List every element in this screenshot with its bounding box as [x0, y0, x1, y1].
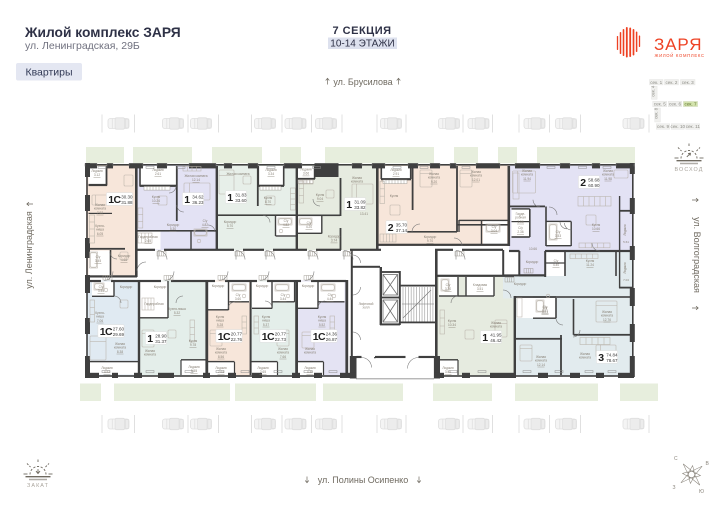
svg-text:5.61: 5.61	[623, 240, 629, 244]
svg-text:4.20: 4.20	[306, 225, 312, 229]
svg-text:7.92: 7.92	[97, 211, 103, 215]
svg-text:сек. 7: сек. 7	[685, 102, 697, 107]
svg-text:2: 2	[388, 222, 394, 234]
svg-text:сек. 9: сек. 9	[657, 124, 669, 129]
svg-text:2.65: 2.65	[145, 239, 151, 243]
svg-text:Квартиры: Квартиры	[25, 67, 72, 79]
svg-text:Коридор: Коридор	[302, 284, 315, 288]
svg-text:ЗАРЯ: ЗАРЯ	[654, 35, 702, 54]
svg-text:3: 3	[598, 352, 604, 364]
svg-text:8.38: 8.38	[117, 350, 123, 354]
svg-text:2.36: 2.36	[517, 230, 523, 234]
svg-text:10.34: 10.34	[448, 323, 456, 327]
svg-text:сек. 5: сек. 5	[654, 102, 666, 107]
svg-text:12.14: 12.14	[537, 363, 545, 367]
svg-text:1: 1	[482, 332, 488, 344]
svg-text:сек. 6: сек. 6	[669, 102, 681, 107]
svg-text:10.66: 10.66	[529, 247, 537, 251]
svg-text:комната: комната	[144, 353, 156, 357]
svg-text:9.20: 9.20	[431, 180, 437, 184]
svg-text:60.90: 60.90	[588, 183, 600, 188]
svg-text:9.04: 9.04	[317, 197, 323, 201]
svg-text:78.67: 78.67	[606, 358, 618, 363]
svg-text:комната: комната	[304, 351, 316, 355]
svg-text:5.37: 5.37	[263, 323, 269, 327]
svg-text:Лоджия: Лоджия	[623, 262, 627, 274]
svg-text:ул. Волгоградская: ул. Волгоградская	[692, 217, 702, 293]
svg-text:26.87: 26.87	[326, 337, 338, 342]
svg-text:31.37: 31.37	[155, 339, 167, 344]
svg-text:12.01: 12.01	[472, 178, 480, 182]
svg-text:12.76: 12.76	[603, 318, 611, 322]
svg-text:Жилой комплекс ЗАРЯ: Жилой комплекс ЗАРЯ	[24, 25, 181, 40]
svg-text:33.82: 33.82	[354, 205, 366, 210]
svg-text:7.04: 7.04	[623, 278, 629, 282]
svg-text:8.56: 8.56	[218, 355, 224, 359]
svg-text:ЖИЛОЙ КОМПЛЕКС: ЖИЛОЙ КОМПЛЕКС	[655, 53, 705, 58]
svg-text:3.45: 3.45	[98, 289, 104, 293]
svg-text:ул. Ленинградская: ул. Ленинградская	[24, 211, 34, 289]
svg-text:7.06: 7.06	[97, 319, 103, 323]
svg-text:комната: комната	[351, 180, 363, 184]
svg-text:Коридор: Коридор	[526, 260, 539, 264]
svg-text:1С: 1С	[108, 194, 121, 206]
svg-text:4.44: 4.44	[327, 297, 333, 301]
svg-text:Гардеробная: Гардеробная	[144, 302, 164, 306]
svg-text:сек. 4: сек. 4	[650, 85, 655, 97]
svg-text:5.32: 5.32	[174, 311, 180, 315]
svg-text:5.70: 5.70	[227, 224, 233, 228]
svg-text:сек. 10: сек. 10	[671, 124, 686, 129]
svg-text:З: З	[673, 485, 676, 491]
svg-text:31.88: 31.88	[121, 200, 133, 205]
svg-text:3.53: 3.53	[555, 234, 561, 238]
svg-text:Жилая комната: Жилая комната	[226, 172, 249, 176]
svg-text:3.04: 3.04	[491, 229, 497, 233]
svg-text:8.70: 8.70	[265, 200, 271, 204]
svg-text:3.44: 3.44	[280, 297, 286, 301]
svg-text:ЗАКАТ: ЗАКАТ	[27, 483, 49, 489]
svg-text:ул. Брусилова: ул. Брусилова	[333, 77, 392, 87]
svg-text:9.78: 9.78	[190, 343, 196, 347]
svg-text:22.73: 22.73	[275, 337, 287, 342]
svg-text:13.41: 13.41	[360, 212, 368, 216]
svg-text:1: 1	[227, 192, 233, 204]
svg-text:11.24: 11.24	[586, 263, 594, 267]
svg-text:сек. 11: сек. 11	[686, 124, 701, 129]
svg-text:Коридор: Коридор	[212, 284, 225, 288]
svg-text:1С: 1С	[313, 331, 326, 343]
svg-text:5.55: 5.55	[191, 369, 197, 373]
svg-text:комната: комната	[490, 325, 502, 329]
svg-text:3.51: 3.51	[477, 287, 483, 291]
svg-text:3.70: 3.70	[445, 287, 451, 291]
svg-text:12.14: 12.14	[192, 178, 200, 182]
svg-text:7.66: 7.66	[280, 355, 286, 359]
svg-text:6.05: 6.05	[97, 232, 103, 236]
svg-text:3.66: 3.66	[303, 172, 309, 176]
svg-text:1: 1	[184, 194, 190, 206]
svg-text:1: 1	[346, 199, 352, 211]
svg-text:1С: 1С	[100, 326, 113, 338]
svg-text:46.42: 46.42	[490, 338, 502, 343]
svg-text:2.91: 2.91	[393, 172, 399, 176]
svg-text:Ю: Ю	[699, 489, 704, 495]
svg-text:1.56: 1.56	[517, 220, 523, 224]
svg-text:22.76: 22.76	[231, 337, 243, 342]
svg-text:33.60: 33.60	[235, 198, 247, 203]
svg-text:ул. Полины Осипенко: ул. Полины Осипенко	[318, 475, 408, 485]
svg-text:3.45: 3.45	[95, 259, 101, 263]
svg-text:37.14: 37.14	[396, 228, 408, 233]
svg-text:4.40: 4.40	[553, 263, 559, 267]
svg-text:5.52: 5.52	[319, 323, 325, 327]
svg-text:7 СЕКЦИЯ: 7 СЕКЦИЯ	[332, 25, 391, 37]
svg-text:Коридор: Коридор	[514, 282, 527, 286]
svg-text:3.34: 3.34	[268, 172, 274, 176]
svg-text:5.28: 5.28	[217, 323, 223, 327]
svg-text:11.98: 11.98	[604, 177, 612, 181]
svg-text:4.82: 4.82	[283, 223, 289, 227]
svg-text:Кухня: Кухня	[390, 194, 399, 198]
svg-text:9.70: 9.70	[427, 239, 433, 243]
svg-text:ВОСХОД: ВОСХОД	[675, 167, 704, 173]
svg-text:3.51: 3.51	[445, 370, 451, 374]
svg-text:1: 1	[147, 333, 153, 345]
svg-text:С: С	[674, 456, 678, 462]
svg-text:2.61: 2.61	[155, 172, 161, 176]
svg-text:2.65: 2.65	[260, 370, 266, 374]
svg-text:36.23: 36.23	[192, 200, 204, 205]
svg-text:3.21: 3.21	[542, 310, 548, 314]
svg-text:3.60: 3.60	[235, 297, 241, 301]
svg-text:комната: комната	[579, 356, 591, 360]
svg-text:10.66: 10.66	[592, 227, 600, 231]
svg-text:5.30: 5.30	[170, 227, 176, 231]
svg-text:Коридор: Коридор	[154, 285, 167, 289]
svg-text:холл: холл	[363, 306, 370, 310]
svg-text:сек. 2: сек. 2	[666, 80, 678, 85]
svg-text:сек. 8: сек. 8	[654, 107, 659, 119]
svg-text:4.82: 4.82	[202, 223, 208, 227]
svg-text:Коридор: Коридор	[256, 284, 269, 288]
svg-text:1С: 1С	[262, 331, 275, 343]
svg-text:29.69: 29.69	[113, 332, 125, 337]
svg-text:сек. 3: сек. 3	[682, 80, 694, 85]
svg-text:2: 2	[580, 177, 586, 189]
svg-text:1С: 1С	[218, 331, 231, 343]
svg-text:3.12: 3.12	[94, 173, 100, 177]
svg-text:4.40: 4.40	[307, 370, 313, 374]
svg-text:ул. Ленинградская, 29Б: ул. Ленинградская, 29Б	[25, 40, 140, 52]
svg-text:11.94: 11.94	[523, 177, 531, 181]
svg-text:Коридор: Коридор	[120, 285, 133, 289]
svg-text:4.52: 4.52	[104, 370, 110, 374]
svg-text:2.64: 2.64	[218, 370, 224, 374]
svg-text:3.74: 3.74	[331, 239, 337, 243]
svg-text:10.24: 10.24	[152, 199, 160, 203]
svg-text:Лоджия: Лоджия	[623, 224, 627, 236]
svg-text:4.68: 4.68	[121, 258, 127, 262]
svg-text:10-14 ЭТАЖИ: 10-14 ЭТАЖИ	[330, 39, 394, 50]
svg-text:сек. 1: сек. 1	[650, 80, 662, 85]
